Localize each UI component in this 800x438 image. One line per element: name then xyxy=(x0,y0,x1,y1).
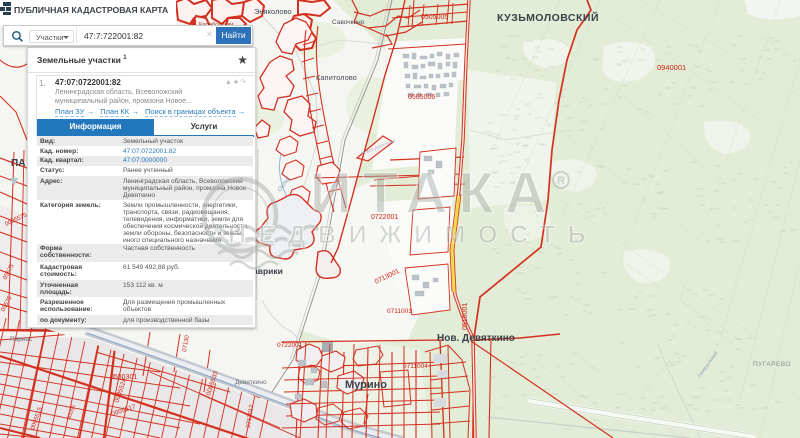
svg-text:0516001: 0516001 xyxy=(462,303,469,330)
svg-text:Эняколово: Эняколово xyxy=(254,7,292,16)
svg-text:КУЗЬМОЛОВСКИЙ: КУЗЬМОЛОВСКИЙ xyxy=(497,11,599,24)
svg-text:Нов. Девяткино: Нов. Девяткино xyxy=(437,333,515,344)
svg-text:0722001: 0722001 xyxy=(371,214,398,221)
svg-text:0505006: 0505006 xyxy=(408,94,435,101)
svg-text:Девяткино: Девяткино xyxy=(235,379,267,386)
svg-text:ПА: ПА xyxy=(11,158,25,169)
svg-text:0940001: 0940001 xyxy=(657,63,686,72)
svg-text:Савочкино: Савочкино xyxy=(332,19,365,26)
svg-text:Парнас: Парнас xyxy=(10,336,33,343)
svg-text:Капитолово: Капитолово xyxy=(316,73,357,82)
svg-text:0711004: 0711004 xyxy=(403,363,428,370)
svg-text:ПУГАРЕВО: ПУГАРЕВО xyxy=(753,361,791,368)
svg-text:Мурино: Мурино xyxy=(345,379,387,391)
svg-text:0505005: 0505005 xyxy=(421,14,448,21)
svg-text:аврики: аврики xyxy=(253,266,283,276)
svg-text:0711001: 0711001 xyxy=(387,308,412,315)
svg-text:0722001: 0722001 xyxy=(277,342,303,349)
